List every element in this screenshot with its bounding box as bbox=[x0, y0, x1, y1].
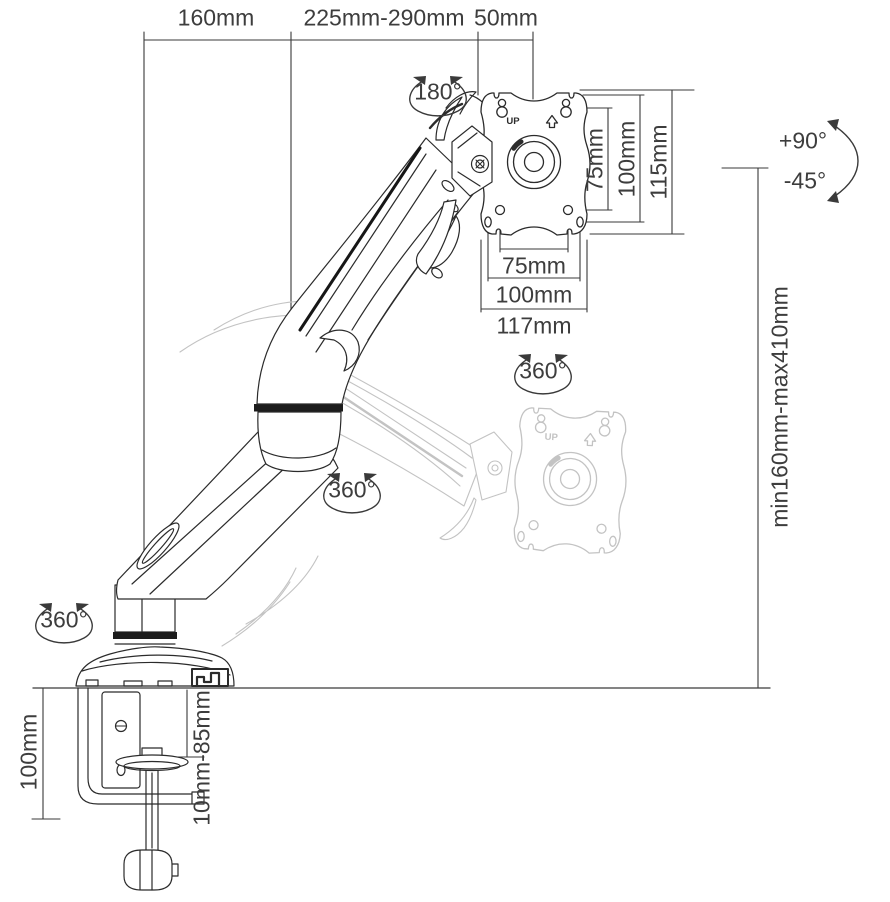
clamp-screw bbox=[146, 771, 158, 850]
height-range-label: min160mm-max410mm bbox=[769, 286, 792, 528]
vesa-plate bbox=[479, 93, 590, 235]
clamp-knob bbox=[124, 850, 172, 890]
dimension-diagram: UP bbox=[0, 0, 890, 902]
tilt-down-label: -45° bbox=[784, 170, 826, 193]
dim-arm-extension-label: 225mm-290mm bbox=[303, 7, 464, 30]
desk-clamp bbox=[78, 688, 204, 890]
rotation-360-elbow-label: 360° bbox=[328, 479, 376, 502]
rotation-180-label: 180° bbox=[414, 81, 462, 104]
mount-base bbox=[76, 585, 234, 686]
ghost-vesa-plate bbox=[511, 407, 629, 555]
rotation-360-head-label: 360° bbox=[519, 360, 567, 383]
vesa-100mm-vertical-label: 100mm bbox=[616, 121, 639, 198]
vesa-75mm-horizontal-label: 75mm bbox=[502, 255, 566, 278]
monitor-arm bbox=[117, 92, 491, 599]
clamp-height-label: 100mm bbox=[18, 714, 41, 791]
vesa-115mm-height-label: 115mm bbox=[648, 125, 671, 200]
vesa-117mm-width-label: 117mm bbox=[497, 315, 572, 338]
vesa-100mm-horizontal-label: 100mm bbox=[496, 284, 573, 307]
diagram-canvas: UP bbox=[0, 0, 890, 902]
rotation-360-base-label: 360° bbox=[40, 609, 88, 632]
desk-thickness-label: 10mm-85mm bbox=[191, 690, 214, 825]
dim-base-to-elbow-label: 160mm bbox=[178, 7, 255, 30]
vesa-75mm-vertical-label: 75mm bbox=[584, 128, 607, 192]
tilt-up-label: +90° bbox=[779, 130, 827, 153]
tilt-arrow-icon bbox=[827, 119, 858, 203]
dim-head-offset-label: 50mm bbox=[474, 7, 538, 30]
